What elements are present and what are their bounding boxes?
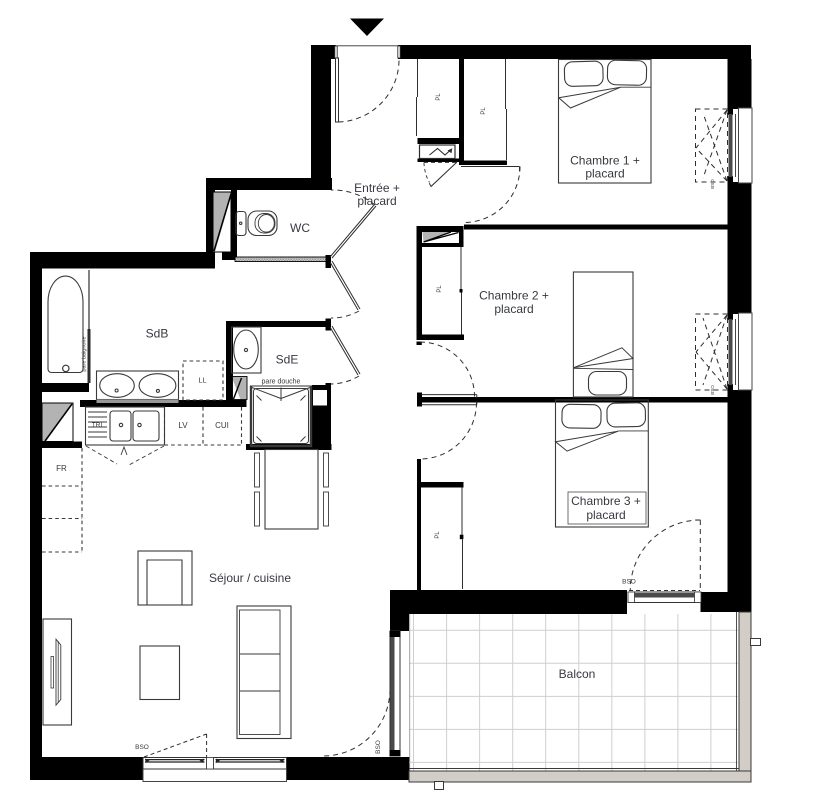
- svg-text:SdE: SdE: [276, 353, 299, 367]
- svg-text:pare baignoire: pare baignoire: [82, 336, 88, 371]
- svg-text:Entrée +: Entrée +: [354, 181, 400, 195]
- svg-text:pare douche: pare douche: [262, 379, 301, 386]
- svg-text:BSO: BSO: [710, 179, 715, 189]
- svg-text:placard: placard: [357, 194, 396, 208]
- svg-text:LL: LL: [198, 376, 206, 385]
- svg-text:BSO: BSO: [375, 740, 382, 754]
- svg-text:FR: FR: [56, 464, 67, 473]
- svg-text:TRI: TRI: [92, 422, 103, 429]
- svg-text:placard: placard: [585, 167, 624, 181]
- svg-text:PL: PL: [437, 285, 443, 293]
- svg-text:WC: WC: [290, 221, 310, 235]
- svg-text:LV: LV: [178, 421, 188, 430]
- svg-text:Séjour / cuisine: Séjour / cuisine: [209, 571, 291, 585]
- svg-text:placard: placard: [586, 508, 625, 522]
- svg-text:CUI: CUI: [215, 421, 229, 430]
- svg-text:PL: PL: [481, 107, 487, 115]
- svg-text:BSO: BSO: [135, 744, 149, 751]
- svg-text:PL: PL: [435, 531, 441, 539]
- svg-text:Balcon: Balcon: [559, 667, 596, 681]
- svg-text:SdB: SdB: [146, 327, 169, 341]
- svg-text:placard: placard: [494, 302, 533, 316]
- svg-text:BSO: BSO: [710, 385, 715, 395]
- svg-text:Chambre 1 +: Chambre 1 +: [570, 154, 640, 168]
- svg-text:BSO: BSO: [622, 579, 636, 586]
- svg-text:Chambre 2 +: Chambre 2 +: [479, 289, 549, 303]
- svg-text:Chambre 3 +: Chambre 3 +: [571, 494, 641, 508]
- svg-text:PL: PL: [436, 93, 442, 101]
